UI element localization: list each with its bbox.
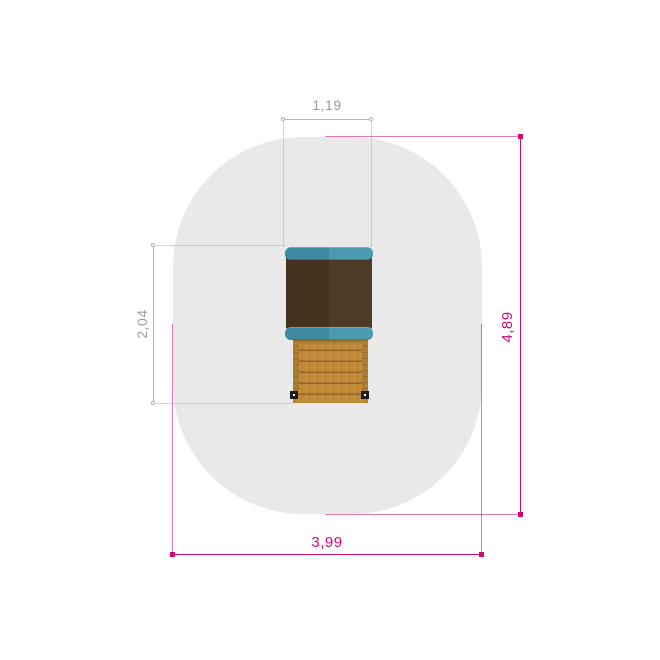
deck-post-right [361, 391, 369, 399]
extension-line [325, 136, 520, 137]
dim-line-structure-depth [153, 245, 154, 403]
dim-label-zone-width: 3,99 [172, 535, 482, 551]
extension-line [154, 403, 293, 404]
extension-line [154, 245, 285, 246]
dim-label-zone-length: 4,89 [500, 311, 516, 342]
extension-line [283, 120, 284, 247]
roof-edge-top [285, 247, 373, 260]
extension-line [481, 324, 482, 554]
dim-label-roof-width: 1,19 [283, 97, 371, 113]
deck-rail-right [362, 340, 368, 391]
dim-line-zone-length [520, 136, 521, 514]
dim-line-zone-width [172, 554, 482, 555]
extension-line [325, 514, 520, 515]
dim-line-roof-width [283, 119, 372, 120]
wooden-deck [293, 340, 368, 403]
plan-drawing-canvas: 1,19 2,04 4,89 3,99 [0, 0, 660, 660]
deck-post-left [290, 391, 298, 399]
deck-rail-left [293, 340, 299, 391]
roof-edge-bottom [285, 327, 373, 340]
dim-label-structure-depth: 2,04 [134, 309, 150, 338]
extension-line [371, 120, 372, 247]
playhouse-roof [286, 256, 372, 330]
extension-line [172, 324, 173, 554]
